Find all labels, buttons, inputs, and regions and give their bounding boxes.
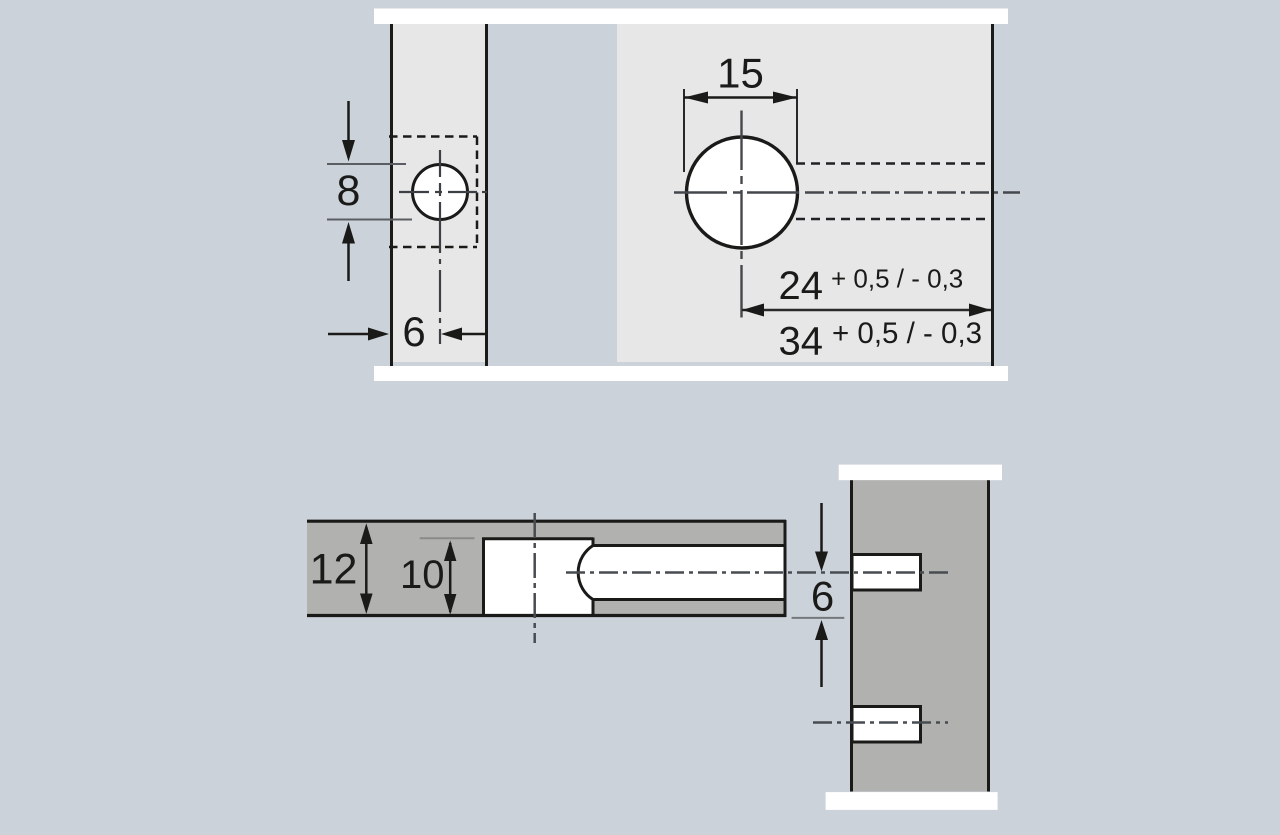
svg-text:+ 0,5 / - 0,3: + 0,5 / - 0,3 xyxy=(832,317,982,350)
svg-text:12: 12 xyxy=(310,546,358,594)
svg-text:10: 10 xyxy=(400,553,445,597)
svg-text:+ 0,5 / - 0,3: + 0,5 / - 0,3 xyxy=(831,264,963,294)
svg-text:6: 6 xyxy=(811,573,834,620)
svg-text:34: 34 xyxy=(779,320,824,364)
svg-text:6: 6 xyxy=(402,308,425,355)
svg-text:8: 8 xyxy=(337,167,361,215)
svg-text:24: 24 xyxy=(779,264,824,308)
svg-text:15: 15 xyxy=(717,50,764,97)
